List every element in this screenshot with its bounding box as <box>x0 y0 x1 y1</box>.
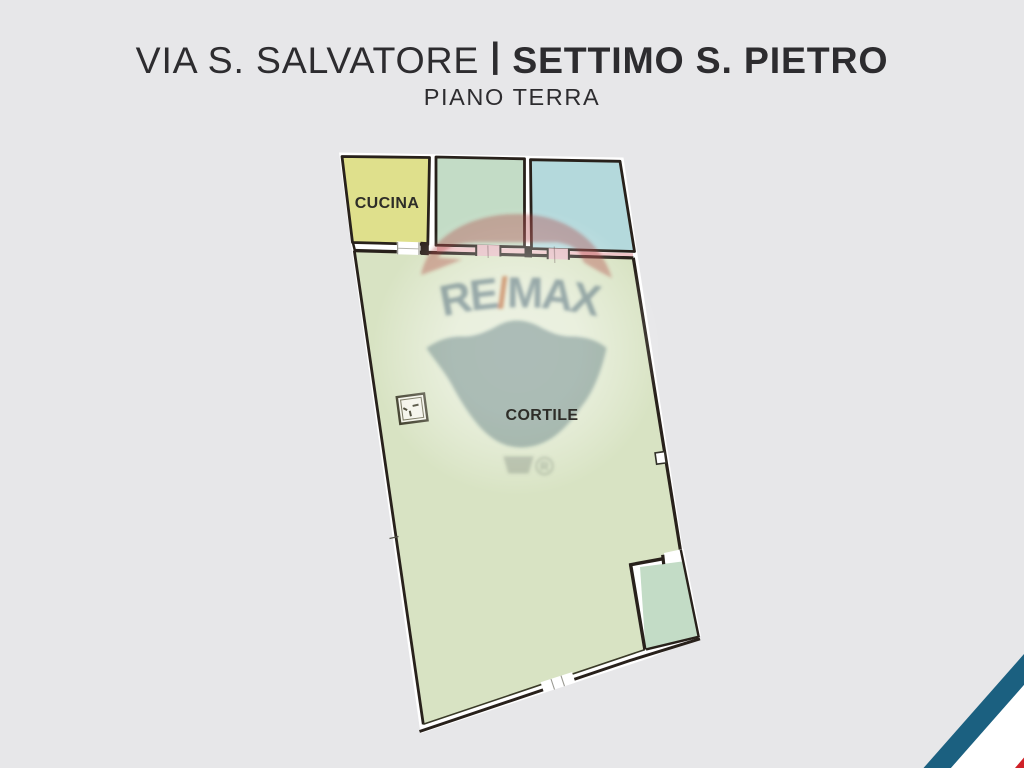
svg-text:CORTILE: CORTILE <box>505 407 578 424</box>
svg-text:CUCINA: CUCINA <box>355 195 420 212</box>
svg-text:R: R <box>540 460 549 474</box>
